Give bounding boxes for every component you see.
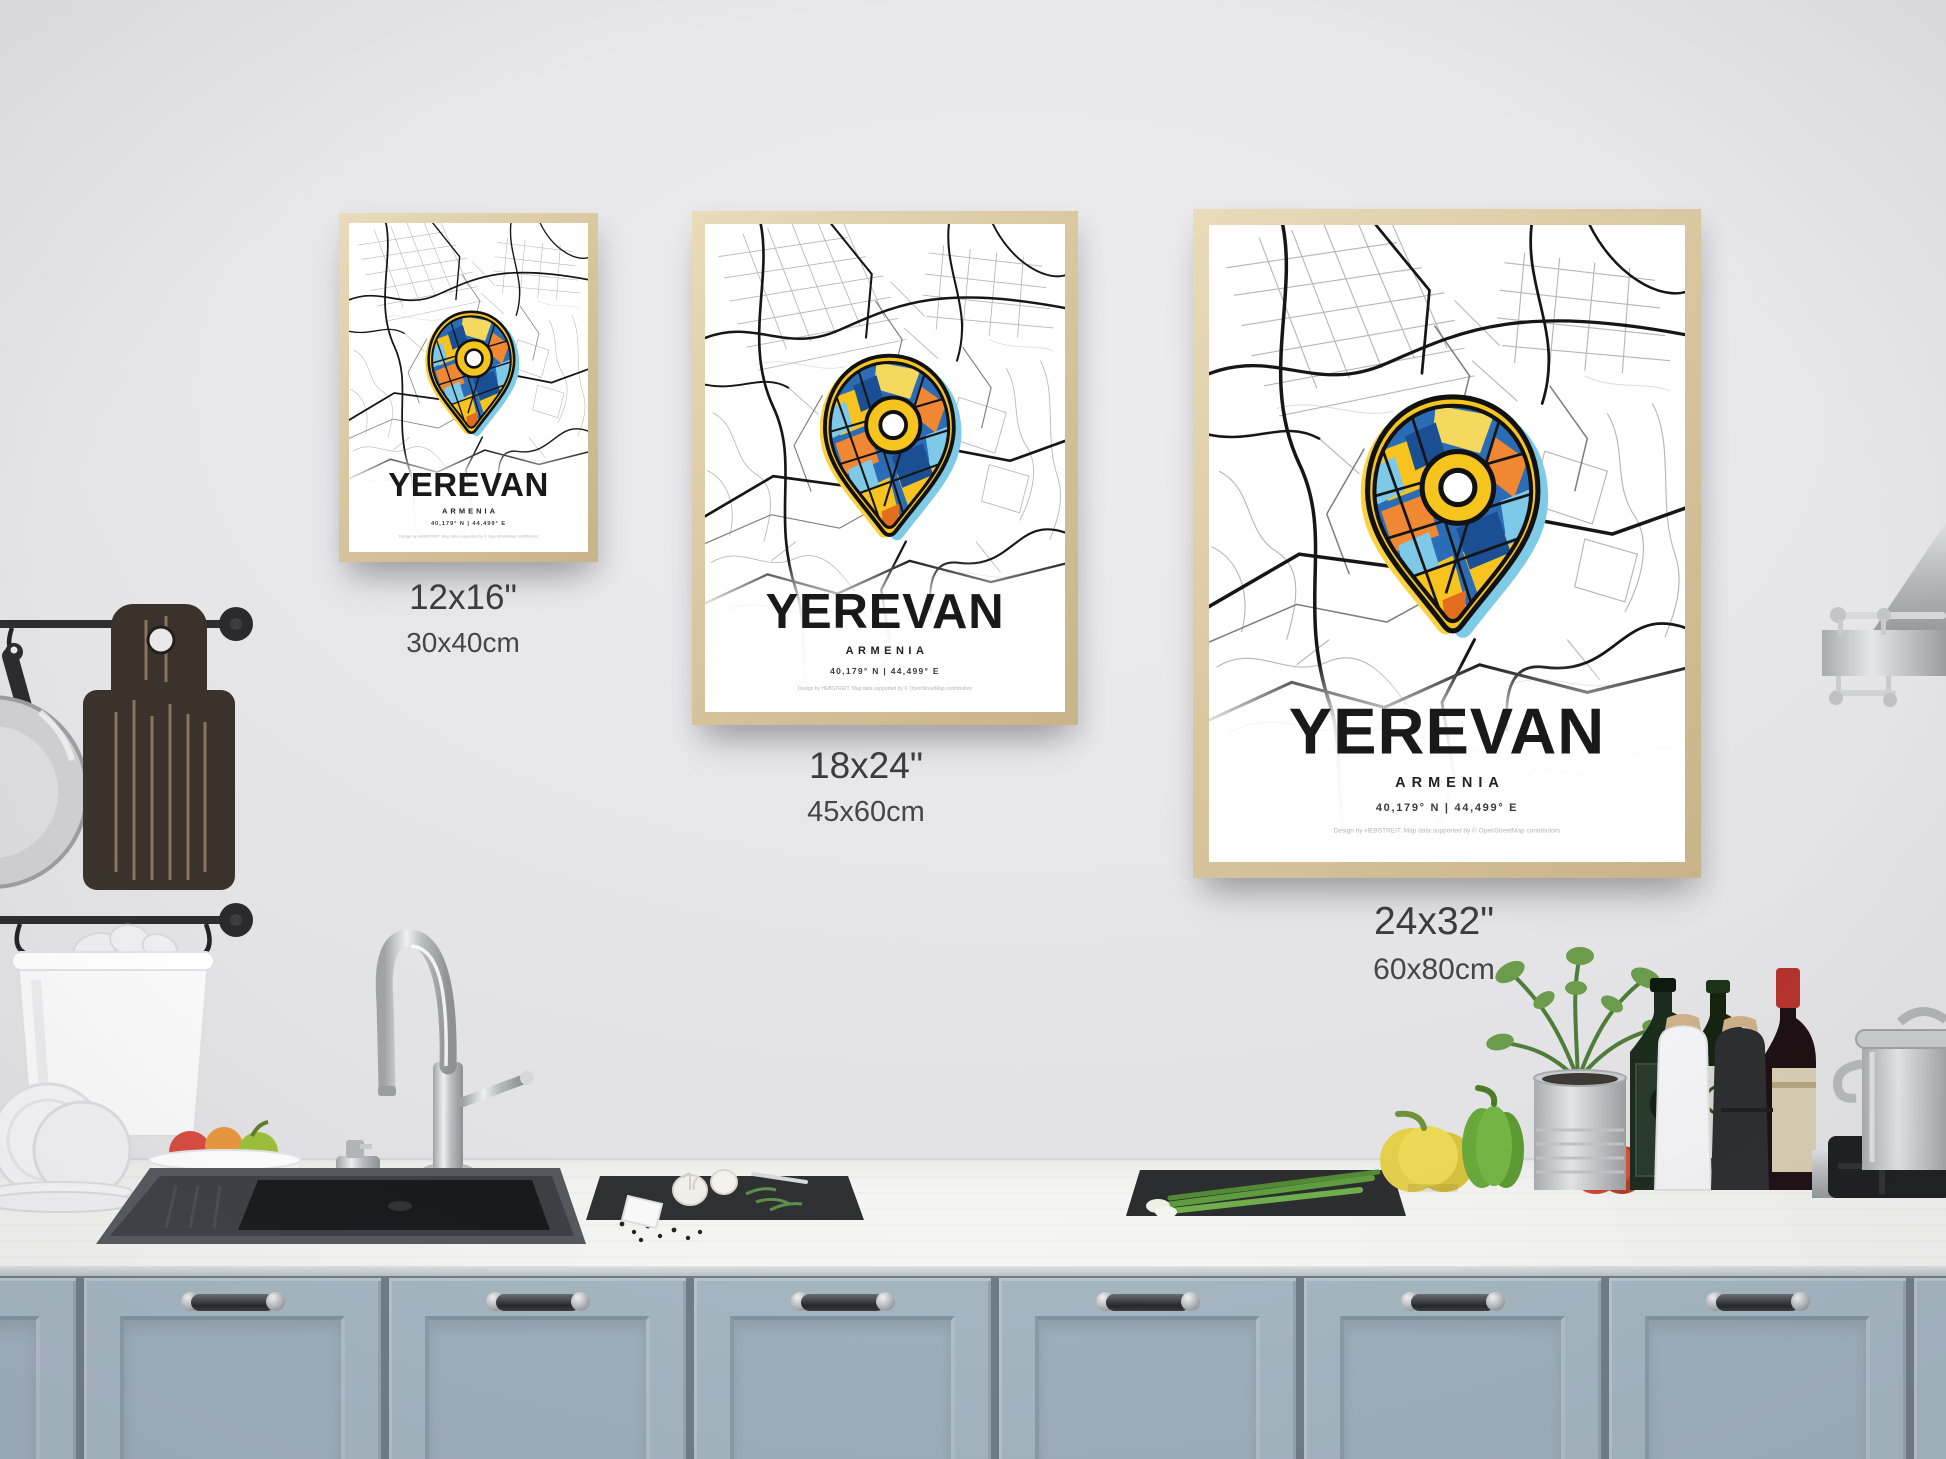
poster-credit-line: Design by HEBSTREIT. Map data supported … (399, 534, 538, 539)
cabinet-door-panel (1035, 1316, 1260, 1459)
cabinet-door-panel (730, 1316, 955, 1459)
poster-credit-line: Design by HEBSTREIT. Map data supported … (798, 686, 972, 692)
size-cm: 30x40cm (406, 627, 520, 659)
poster-paper: YEREVAN ARMENIA 40,179° N | 44,499° E De… (705, 224, 1065, 712)
counter-edge (0, 1266, 1946, 1276)
cabinet-handle (488, 1290, 588, 1316)
cabinet-handle (1403, 1290, 1503, 1316)
framed-map-poster-18x24: YEREVAN ARMENIA 40,179° N | 44,499° E De… (692, 211, 1078, 725)
poster-paper: YEREVAN ARMENIA 40,179° N | 44,499° E De… (349, 223, 588, 552)
cabinet-handle (1708, 1290, 1808, 1316)
poster-country: ARMENIA (442, 507, 498, 516)
cabinet-handle (793, 1290, 893, 1316)
cabinet-door (694, 1278, 991, 1459)
poster-city-title: YEREVAN (388, 466, 549, 504)
cabinet-door (0, 1278, 76, 1459)
poster-city-title: YEREVAN (766, 584, 1005, 640)
poster-country: ARMENIA (846, 645, 929, 657)
kitchen-poster-mockup: YEREVAN ARMENIA 40,179° N | 44,499° E De… (0, 0, 1946, 1459)
cabinet-door-panel (120, 1316, 345, 1459)
countertop (0, 1158, 1946, 1270)
cabinet-door (1304, 1278, 1601, 1459)
size-cm: 60x80cm (1373, 953, 1495, 987)
cabinet-door (1609, 1278, 1906, 1459)
size-label-large: 24x32" 60x80cm (1373, 900, 1495, 987)
framed-map-poster-12x16: YEREVAN ARMENIA 40,179° N | 44,499° E De… (339, 213, 598, 562)
poster-country: ARMENIA (1395, 775, 1505, 791)
poster-coordinates: 40,179° N | 44,499° E (1376, 802, 1518, 814)
size-inches: 12x16" (406, 578, 520, 618)
poster-coordinates: 40,179° N | 44,499° E (830, 666, 940, 676)
size-label-medium: 18x24" 45x60cm (807, 745, 925, 829)
cabinet-row (0, 1276, 1946, 1459)
cabinet-door-panel (425, 1316, 650, 1459)
cabinet-door-panel (1645, 1316, 1870, 1459)
size-inches: 24x32" (1373, 900, 1495, 944)
cabinet-door (389, 1278, 686, 1459)
cabinet-door-panel (1340, 1316, 1565, 1459)
cabinet-door (999, 1278, 1296, 1459)
size-label-small: 12x16" 30x40cm (406, 578, 520, 659)
cabinet-handle (183, 1290, 283, 1316)
framed-map-poster-24x32: YEREVAN ARMENIA 40,179° N | 44,499° E De… (1193, 209, 1701, 878)
poster-paper: YEREVAN ARMENIA 40,179° N | 44,499° E De… (1209, 225, 1685, 862)
poster-city-title: YEREVAN (1289, 694, 1605, 769)
cabinet-door (84, 1278, 381, 1459)
cabinet-door-panel (0, 1316, 40, 1459)
size-inches: 18x24" (807, 745, 925, 787)
cabinet-door (1914, 1278, 1946, 1459)
poster-coordinates: 40,179° N | 44,499° E (431, 521, 506, 527)
cabinet-handle (1098, 1290, 1198, 1316)
size-cm: 45x60cm (807, 796, 925, 829)
poster-credit-line: Design by HEBSTREIT. Map data supported … (1334, 828, 1561, 835)
